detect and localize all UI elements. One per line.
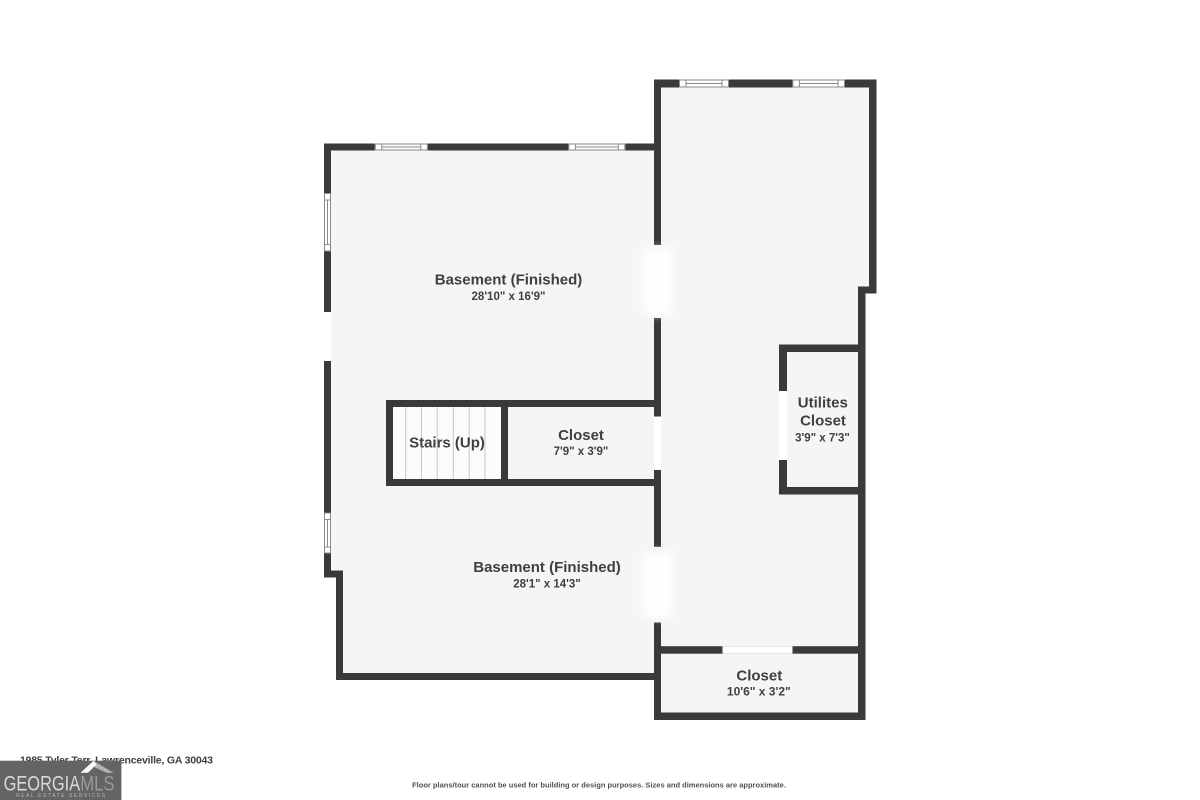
svg-text:Closet: Closet [736, 667, 782, 684]
svg-text:Closet: Closet [800, 413, 846, 430]
svg-text:10'6" x 3'2": 10'6" x 3'2" [727, 684, 791, 698]
svg-text:Closet: Closet [558, 427, 604, 444]
svg-text:Floor plans/tour cannot be use: Floor plans/tour cannot be used for buil… [412, 781, 786, 790]
svg-text:Utilites: Utilites [798, 394, 848, 411]
svg-text:3'9" x 7'3": 3'9" x 7'3" [795, 432, 850, 444]
svg-text:Basement (Finished): Basement (Finished) [473, 559, 621, 576]
svg-text:28'10" x 16'9": 28'10" x 16'9" [472, 291, 546, 303]
svg-text:7'9" x 3'9": 7'9" x 3'9" [554, 446, 609, 458]
svg-text:28'1" x 14'3": 28'1" x 14'3" [513, 579, 581, 591]
svg-text:Stairs (Up): Stairs (Up) [409, 434, 485, 451]
svg-text:Basement (Finished): Basement (Finished) [435, 271, 583, 288]
